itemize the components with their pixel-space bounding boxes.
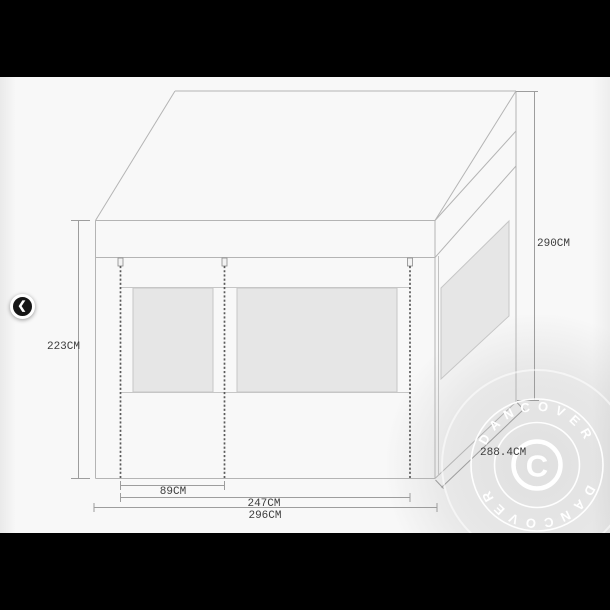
dim-label-side-depth: 288.4CM bbox=[480, 448, 540, 459]
dim-total-height bbox=[516, 92, 539, 401]
dim-label-total-width: 296CM bbox=[238, 511, 292, 522]
front-window-right bbox=[237, 288, 397, 392]
letterbox-bottom bbox=[0, 533, 610, 610]
roof-right-edge bbox=[435, 91, 516, 221]
zipper-pull-middle bbox=[222, 258, 227, 266]
roof-left-edge bbox=[96, 91, 176, 221]
carousel-prev-button[interactable]: ❮ bbox=[10, 294, 35, 319]
valance-top-side bbox=[435, 131, 516, 221]
letterbox-top bbox=[0, 0, 610, 77]
chevron-left-icon: ❮ bbox=[17, 301, 26, 312]
dim-label-door-width: 89CM bbox=[146, 487, 200, 498]
gazebo-technical-drawing: C DANCOVER DANCOVER bbox=[0, 0, 610, 610]
front-window-left bbox=[133, 288, 213, 392]
zipper-pull-right bbox=[408, 258, 413, 266]
dim-label-side-height: 223CM bbox=[40, 342, 80, 353]
product-image-viewer: C DANCOVER DANCOVER 223CM 290CM 288.4CM … bbox=[0, 0, 610, 610]
dim-label-front-opening-width: 247CM bbox=[237, 499, 291, 510]
dancover-watermark: C DANCOVER DANCOVER bbox=[442, 370, 610, 560]
side-window bbox=[441, 221, 509, 379]
dim-label-total-height: 290CM bbox=[537, 239, 597, 250]
zipper-pull-left bbox=[118, 258, 123, 266]
front-window-band bbox=[121, 288, 411, 393]
